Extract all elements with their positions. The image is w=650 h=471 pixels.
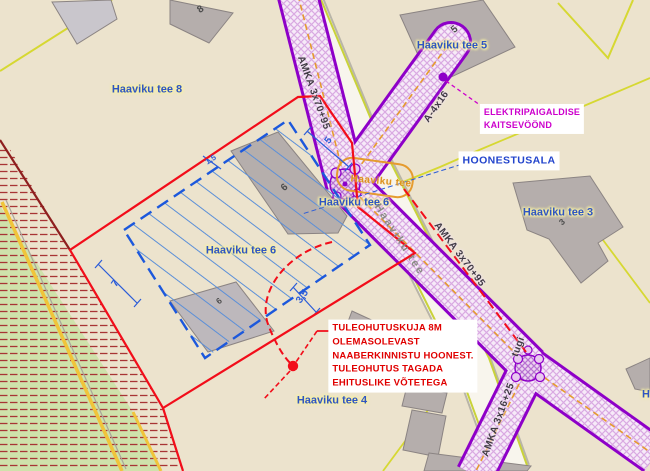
map-canvas[interactable]: Haaviku tee 8Haaviku tee 5Haaviku tee 3H… [0, 0, 650, 471]
pole-point-a4x16 [439, 73, 448, 82]
map-geometry [0, 0, 650, 471]
fire-safety-point [288, 361, 298, 371]
